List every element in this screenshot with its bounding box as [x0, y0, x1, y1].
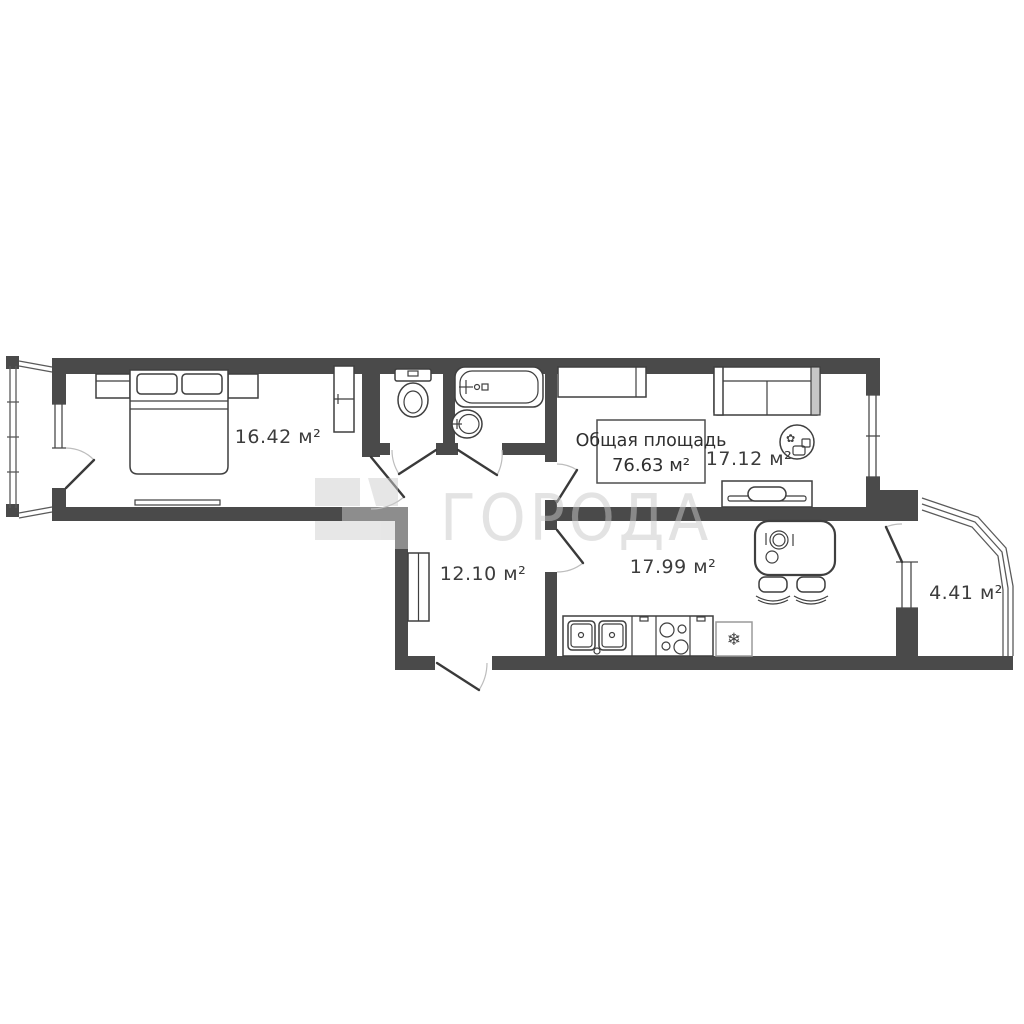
wall-wc-bottom-b [436, 443, 458, 455]
total-area-value: 76.63 м² [612, 455, 690, 476]
wall-hall-left [395, 549, 408, 656]
living-window [866, 395, 880, 477]
toilet-icon [395, 369, 431, 417]
balcony-post-bottom [6, 504, 19, 517]
wardrobe-icon [334, 366, 354, 432]
floor-plan-page: ✿ [0, 0, 1024, 1024]
floor-plan: ✿ [0, 0, 1024, 1024]
wall-bath-bottom [502, 443, 545, 455]
hall-area-label: 12.10 м² [440, 563, 526, 585]
kitchen-window [896, 562, 918, 608]
radiator-icon [135, 500, 220, 505]
plant-icon: ✿ [786, 432, 795, 445]
fridge-icon: ❄ [716, 622, 752, 656]
wall-living-right-upper [866, 374, 880, 395]
total-area-box: Общая площадь 76.63 м² [576, 420, 727, 483]
nightstand-left-icon [96, 374, 130, 398]
right-balcony-glazing [922, 498, 1013, 656]
sink-icon [452, 410, 482, 438]
entrance-door [437, 663, 487, 690]
desk-chair-icon [748, 487, 786, 501]
bathtub-icon [455, 367, 543, 407]
bedroom-area-label: 16.42 м² [235, 426, 321, 448]
desk-icon [722, 481, 812, 507]
wc-door [392, 450, 436, 474]
wall-bedroom-left-upper [52, 358, 66, 404]
wall-bottom-a [395, 656, 435, 670]
sofa-icon [714, 367, 820, 415]
kitchen-balcony-door [886, 524, 902, 562]
hall-cabinet-icon [408, 553, 429, 621]
wall-bottom-b [492, 656, 1013, 670]
total-area-title: Общая площадь [576, 431, 727, 451]
wall-wc-right [443, 374, 455, 443]
wall-wc-bottom-a [380, 443, 390, 455]
bath-door [458, 450, 502, 475]
wall-kitchen-right-lower [896, 608, 918, 656]
wall-bedroom-right [362, 374, 380, 457]
chair-icon [756, 577, 790, 604]
kitchen-area-label: 17.99 м² [630, 556, 716, 578]
wall-corner-block [876, 490, 918, 521]
wall-hall-kitchen-lower [545, 572, 557, 656]
watermark-text: ГОРОДА [440, 482, 712, 556]
living-area-label: 17.12 м² [706, 448, 792, 470]
cabinet-icon [558, 367, 646, 397]
balcony-post-top [6, 356, 19, 369]
nightstand-right-icon [228, 374, 258, 398]
dining-table-icon [755, 521, 835, 575]
balcony-area-label: 4.41 м² [929, 582, 1003, 604]
wall-living-right-lower [866, 477, 880, 507]
bedroom-window [52, 404, 66, 448]
bedroom-balcony-door [66, 448, 94, 488]
wall-hall-left-shared [395, 521, 408, 549]
chair-icon-2 [794, 577, 828, 604]
wall-bath-right-upper [545, 374, 557, 462]
snowflake-icon: ❄ [727, 630, 741, 650]
wall-bedroom-bottom [52, 507, 342, 521]
left-balcony-glazing [7, 361, 52, 518]
bed-icon [130, 370, 228, 474]
